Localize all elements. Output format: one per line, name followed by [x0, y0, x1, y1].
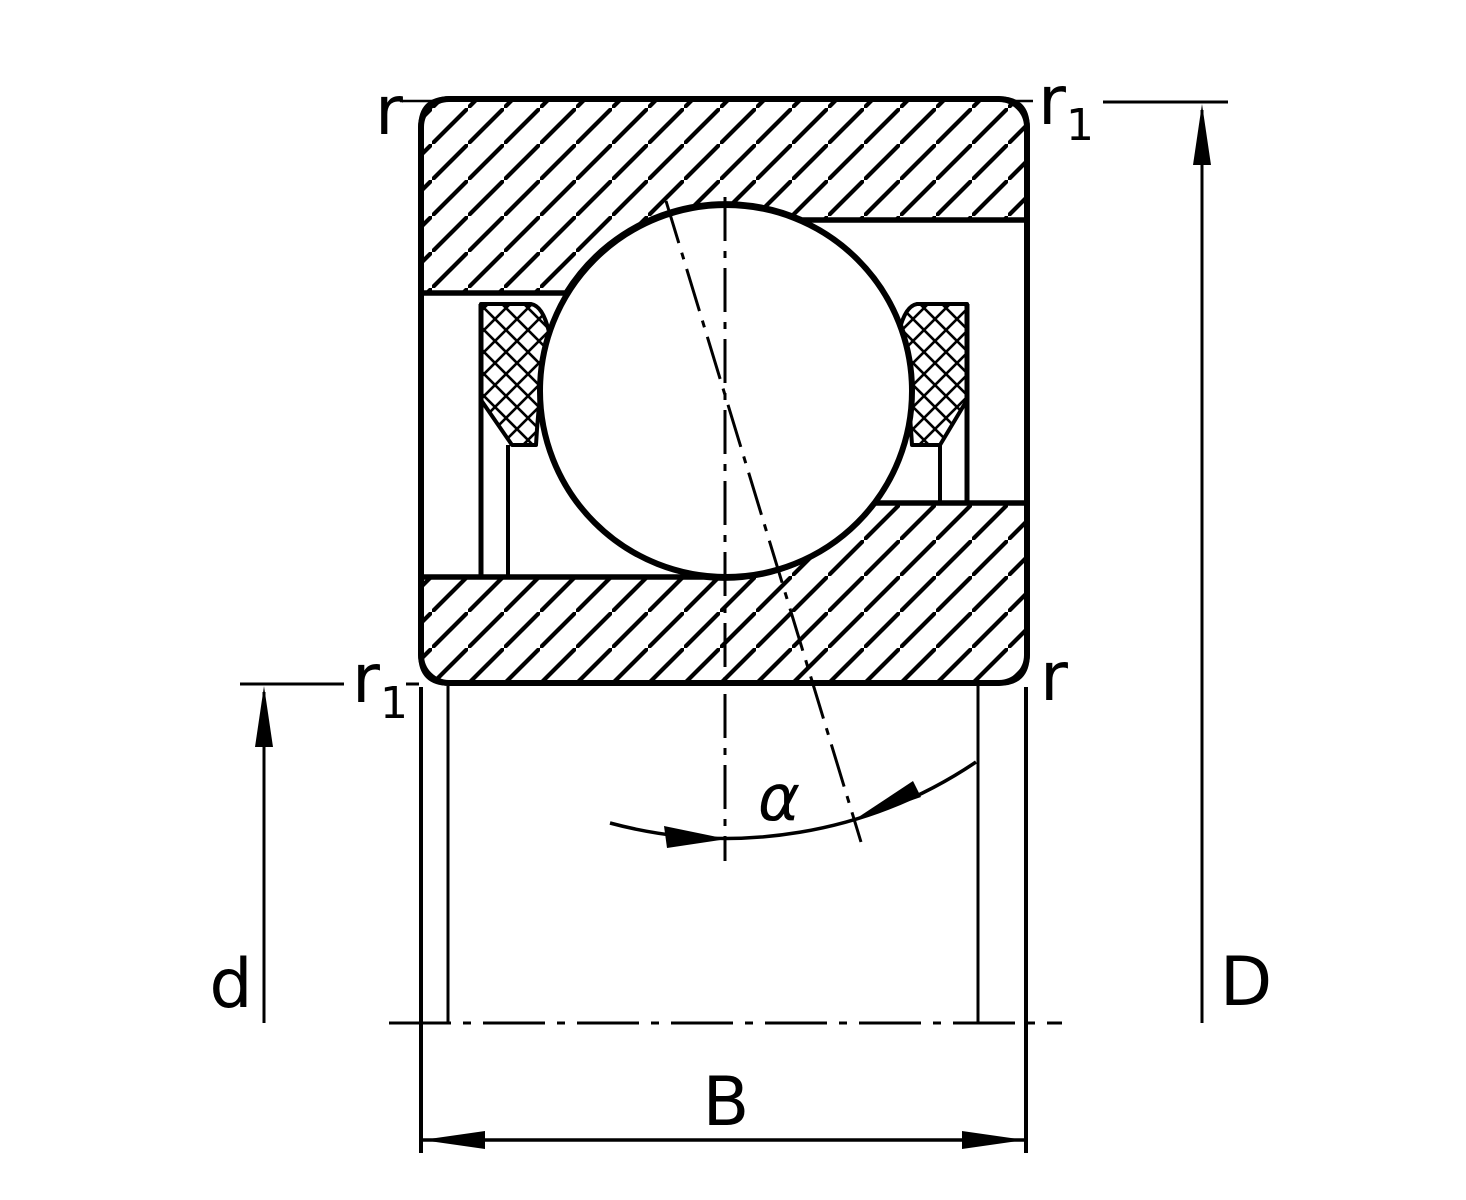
- bearing-cross-section-diagram: α d D B r r1 r1 r: [0, 0, 1466, 1200]
- alpha-label: α: [758, 762, 800, 836]
- B-label: B: [703, 1063, 750, 1142]
- d-label: d: [209, 945, 252, 1024]
- D-label: D: [1220, 943, 1272, 1022]
- r-label-top-left: r: [375, 72, 403, 151]
- r-label-right: r: [1040, 638, 1068, 717]
